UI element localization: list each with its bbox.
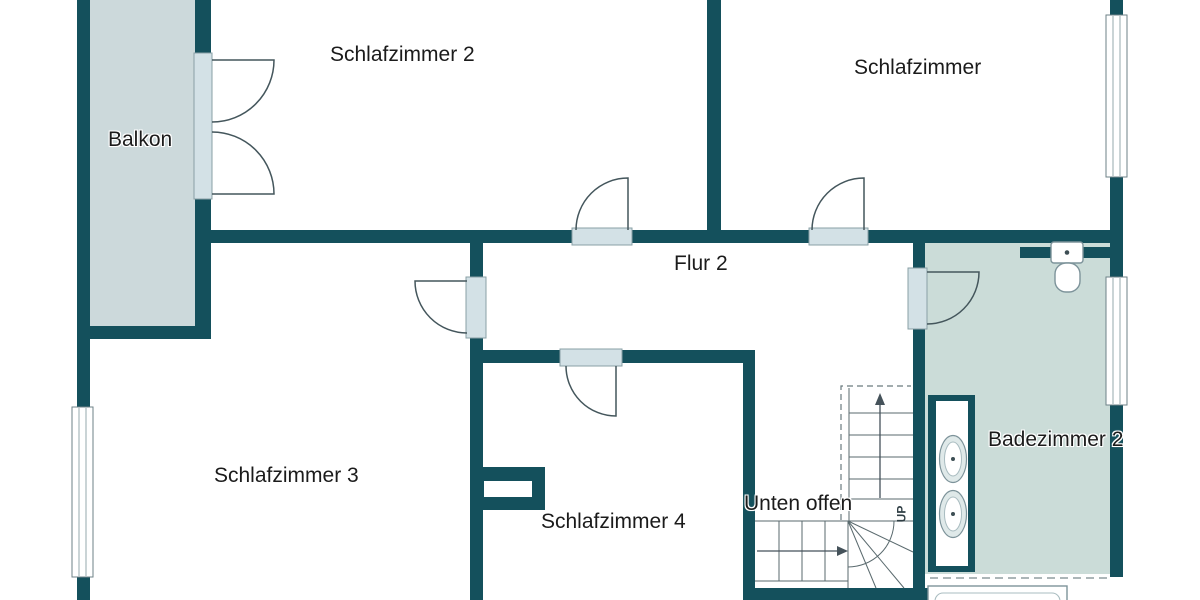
left-exterior-wall-lower (77, 577, 90, 600)
stairs-winder-steps (848, 521, 913, 588)
left-exterior-wall-upper (77, 339, 90, 407)
annotation-unten-offen: Unten offen (744, 493, 852, 515)
bedroom3-door-jamb (466, 277, 486, 338)
room-label-schlafzimmer4: Schlafzimmer 4 (541, 511, 686, 533)
washbasin-1 (940, 436, 967, 483)
bedroom4-top-wall-right (622, 350, 755, 363)
door-jambs (194, 53, 927, 366)
bottom-wall-under-stairs (755, 588, 928, 600)
window-bathroom (1106, 277, 1127, 405)
bedroom-door-jamb (809, 228, 868, 245)
vanity-counter (936, 401, 968, 566)
room-label-schlafzimmer2: Schlafzimmer 2 (330, 44, 475, 66)
balcony-door-jamb (194, 53, 212, 199)
bathroom-door-jamb (908, 268, 927, 329)
balcony-right-wall-upper (195, 0, 211, 55)
bedroom4-top-wall-left (470, 350, 560, 363)
window-bedroom3 (72, 407, 93, 577)
bathroom-left-wall-lower (913, 329, 925, 600)
bedroom-divider-wall (707, 0, 721, 230)
right-exterior-wall-top (1110, 0, 1123, 15)
corridor-top-wall-left (195, 230, 572, 243)
room-label-schlafzimmer3: Schlafzimmer 3 (214, 465, 359, 487)
bedroom-door-swing (812, 178, 864, 230)
balcony-bottom-wall (77, 326, 210, 339)
hall-wall-upper (470, 243, 483, 277)
bedroom2-door-jamb (572, 228, 632, 245)
bedroom3-door-swing (415, 281, 467, 333)
bedroom4-door-jamb (560, 349, 622, 366)
room-label-flur2: Flur 2 (674, 253, 728, 275)
bedroom4-door-swing (566, 366, 616, 416)
floor-plan: Balkon Schlafzimmer 2 Schlafzimmer Flur … (0, 0, 1200, 600)
room-label-badezimmer2: Badezimmer 2 (988, 429, 1123, 451)
corridor-top-wall-mid (632, 230, 809, 243)
corridor-top-wall-right (868, 230, 1123, 243)
room-label-balkon: Balkon (108, 129, 172, 151)
balcony-right-wall-lower (195, 197, 211, 339)
staircase (755, 386, 913, 588)
bathroom-left-wall-upper (913, 230, 925, 269)
window-bedroom-right (1106, 15, 1127, 177)
washbasin-2 (940, 491, 967, 538)
bedroom2-door-swing (576, 178, 628, 230)
chimney-shaft-flue (484, 481, 532, 497)
balcony-door-lower-leaf (212, 132, 274, 194)
room-label-schlafzimmer: Schlafzimmer (854, 57, 981, 79)
right-exterior-wall-mid (1110, 177, 1123, 277)
bedroom4-right-wall (743, 350, 755, 600)
annotation-stairs-up: UP (894, 506, 908, 523)
stairs-up-arrow (875, 393, 885, 498)
balcony-left-wall (77, 0, 90, 326)
stairs-lower-flight (755, 521, 848, 588)
balcony-door-upper-leaf (212, 60, 274, 122)
balcony-floor (90, 0, 195, 326)
bathtub (928, 586, 1067, 600)
